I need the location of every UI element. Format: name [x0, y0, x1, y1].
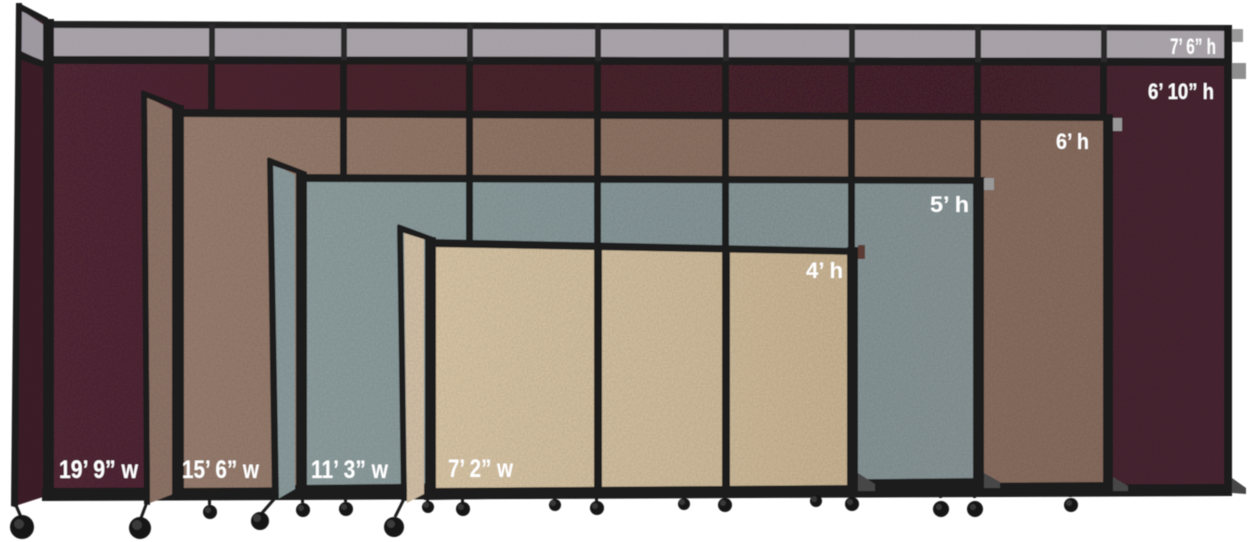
svg-text:5’ h: 5’ h	[930, 192, 969, 217]
svg-text:19’ 9” w: 19’ 9” w	[59, 456, 138, 484]
svg-text:6’ 10” h: 6’ 10” h	[1148, 79, 1214, 104]
svg-text:7’ 2” w: 7’ 2” w	[448, 455, 513, 483]
svg-text:4’ h: 4’ h	[806, 258, 843, 283]
svg-text:6’ h: 6’ h	[1056, 129, 1089, 154]
svg-text:15’ 6” w: 15’ 6” w	[182, 456, 259, 484]
svg-text:11’ 3” w: 11’ 3” w	[311, 456, 388, 484]
svg-text:7’ 6” h: 7’ 6” h	[1170, 34, 1216, 59]
